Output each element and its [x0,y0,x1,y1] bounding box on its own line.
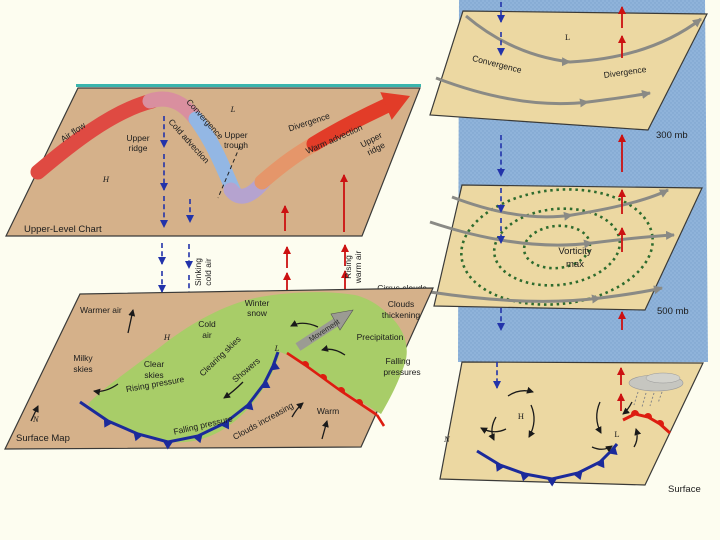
clouds-thickening-line1: Clouds [388,299,414,309]
weather-diagram: L Convergence Divergence Vorticity max [0,0,720,540]
surface-map-title: Surface Map [16,433,70,444]
500mb-level-label: 500 mb [657,306,689,317]
milky-skies-line2: skies [73,364,92,374]
upper-ridge-left-line1: Upper [126,133,149,143]
upper-trough-line2: trough [224,140,248,150]
vorticity-label-line1: Vorticity [558,246,592,257]
upper-level-chart-panel: Air flow Convergence Cold advection Uppe… [6,86,421,237]
falling-pressures-line2: pressures [383,367,420,377]
milky-skies-line1: Milky [73,353,93,363]
svg-text:cold air: cold air [203,258,213,286]
warm-front-tail [377,415,384,426]
sinking-cold-air-label: Sinking cold air [193,258,213,286]
precipitation-label: Precipitation [357,332,404,342]
right-surface-panel: H L N [440,362,703,485]
high-label-right-surface: H [518,411,524,421]
rising-warm-air-label: Rising warm air [343,251,363,285]
winter-snow-line1: Winter [245,298,270,308]
falling-pressures-line1: Falling [385,356,410,366]
vorticity-label-line2: max [566,259,584,270]
upper-ridge-left-line2: ridge [129,143,148,153]
right-diagram: L Convergence Divergence Vorticity max [430,0,708,495]
cold-air-line1: Cold [198,319,216,329]
low-label-300mb: L [565,32,570,42]
surface-map-panel: Warmer air H Cold air Milky skies Clear … [5,288,433,449]
warm-label: Warm [317,406,339,416]
low-label-right-surface: L [614,429,619,439]
left-diagram: Air flow Convergence Cold advection Uppe… [5,86,433,450]
high-label-surface: H [163,332,171,342]
low-label-surface: L [274,343,280,353]
upper-chart-title: Upper-Level Chart [24,224,102,235]
winter-snow-line2: snow [247,308,268,318]
warmer-air-label: Warmer air [80,305,122,315]
svg-text:Sinking: Sinking [193,258,203,286]
clouds-thickening-line2: thickening [382,310,421,320]
300mb-level-label: 300 mb [656,130,688,141]
upper-trough-line1: Upper [224,130,247,140]
slide: L Convergence Divergence Vorticity max [0,0,720,540]
clear-skies-line1: Clear [144,359,164,369]
surface-level-label: Surface [668,484,701,495]
high-label-upper: H [102,174,110,184]
svg-text:Rising: Rising [343,255,353,279]
low-label-upper: L [230,104,236,114]
cold-air-line2: air [202,330,212,340]
svg-text:warm air: warm air [353,251,363,285]
